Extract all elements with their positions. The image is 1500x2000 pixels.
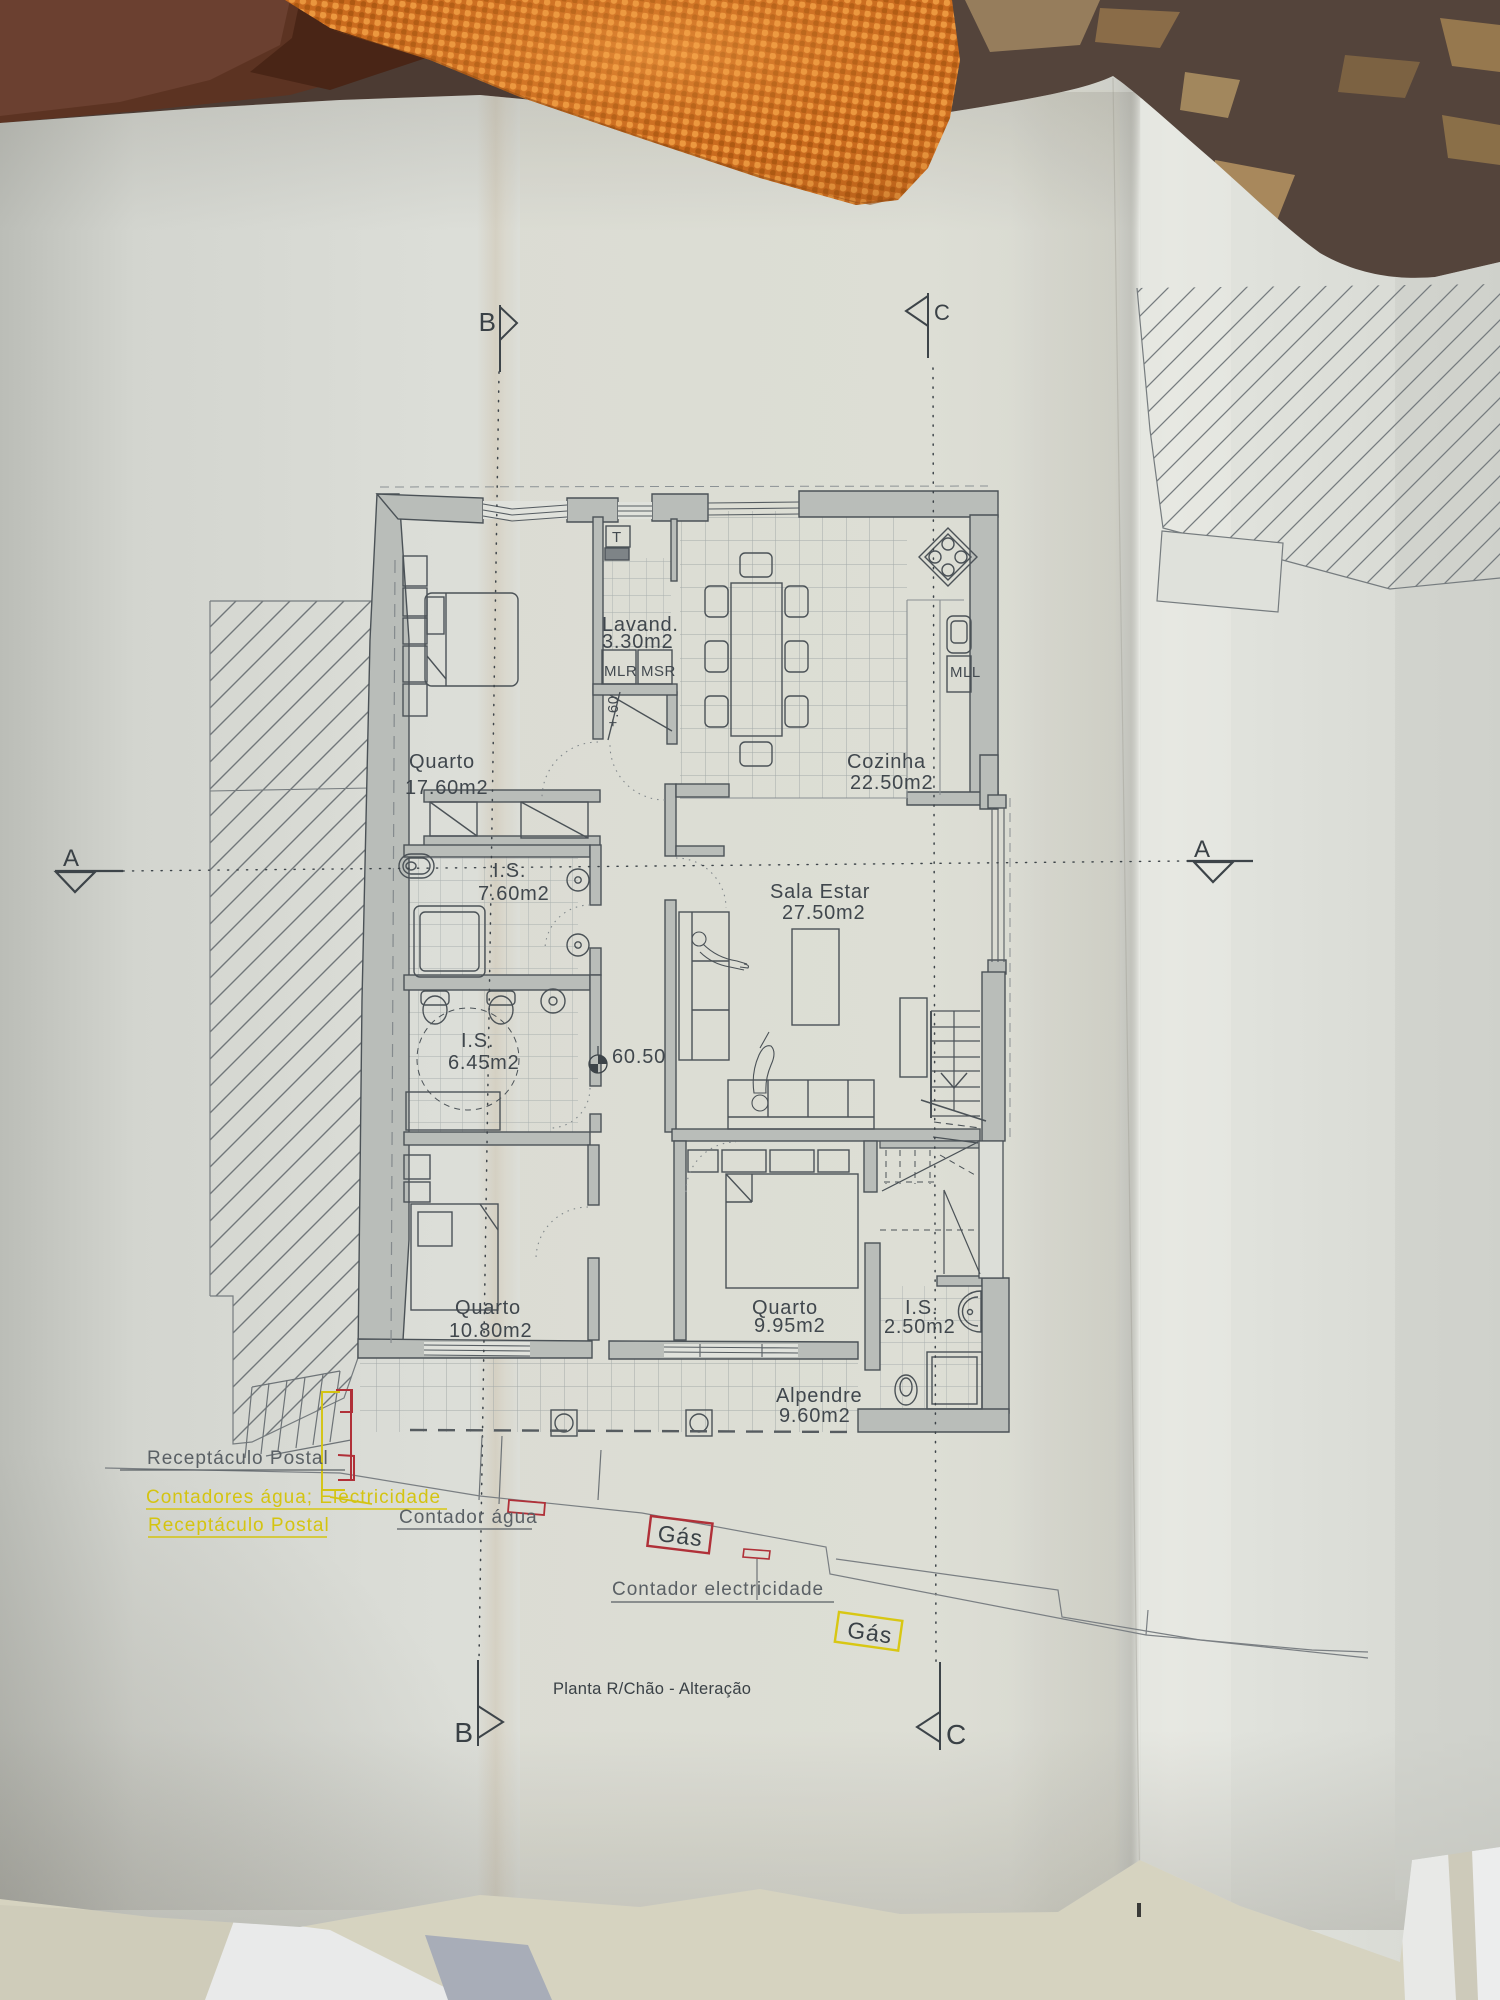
- svg-text:9.95m2: 9.95m2: [754, 1315, 826, 1337]
- svg-text:3.30m2: 3.30m2: [602, 631, 674, 653]
- svg-text:MSR: MSR: [641, 663, 676, 680]
- svg-text:7.60m2: 7.60m2: [478, 883, 550, 905]
- svg-text:2.50m2: 2.50m2: [884, 1316, 956, 1338]
- svg-text:I.S.: I.S.: [461, 1030, 494, 1052]
- svg-text:Quarto: Quarto: [455, 1297, 521, 1319]
- svg-text:A: A: [63, 845, 79, 872]
- svg-text:T: T: [612, 529, 622, 546]
- svg-text:60.50: 60.50: [612, 1046, 666, 1068]
- svg-text:+.60: +.60: [605, 695, 622, 727]
- svg-text:I.S.: I.S.: [493, 860, 526, 882]
- svg-text:Alpendre: Alpendre: [776, 1385, 862, 1407]
- svg-text:Contador electricidade: Contador electricidade: [612, 1579, 824, 1600]
- svg-text:Planta R/Chão - Alteração: Planta R/Chão - Alteração: [553, 1680, 751, 1698]
- svg-text:Quarto: Quarto: [409, 751, 475, 773]
- svg-text:9.60m2: 9.60m2: [779, 1405, 851, 1427]
- svg-text:MLR: MLR: [604, 663, 637, 680]
- svg-text:Cozinha: Cozinha: [847, 751, 926, 773]
- svg-text:Sala Estar: Sala Estar: [770, 881, 870, 903]
- svg-text:Contador água: Contador água: [399, 1507, 538, 1528]
- svg-text:22.50m2: 22.50m2: [850, 772, 933, 794]
- svg-text:27.50m2: 27.50m2: [782, 902, 865, 924]
- svg-text:Contadores água; Electricidade: Contadores água; Electricidade: [146, 1487, 441, 1508]
- svg-text:Receptáculo Postal: Receptáculo Postal: [148, 1515, 330, 1536]
- svg-text:Receptáculo Postal: Receptáculo Postal: [147, 1448, 329, 1469]
- svg-text:C: C: [934, 300, 950, 325]
- svg-text:B: B: [479, 307, 496, 337]
- svg-text:Gás: Gás: [656, 1520, 704, 1551]
- svg-text:17.60m2: 17.60m2: [405, 777, 488, 799]
- svg-text:B: B: [454, 1717, 473, 1748]
- svg-text:MLL: MLL: [950, 664, 981, 681]
- svg-text:6.45m2: 6.45m2: [448, 1052, 520, 1074]
- svg-text:C: C: [946, 1719, 966, 1750]
- svg-text:A: A: [1194, 836, 1210, 863]
- svg-text:10.80m2: 10.80m2: [449, 1320, 532, 1342]
